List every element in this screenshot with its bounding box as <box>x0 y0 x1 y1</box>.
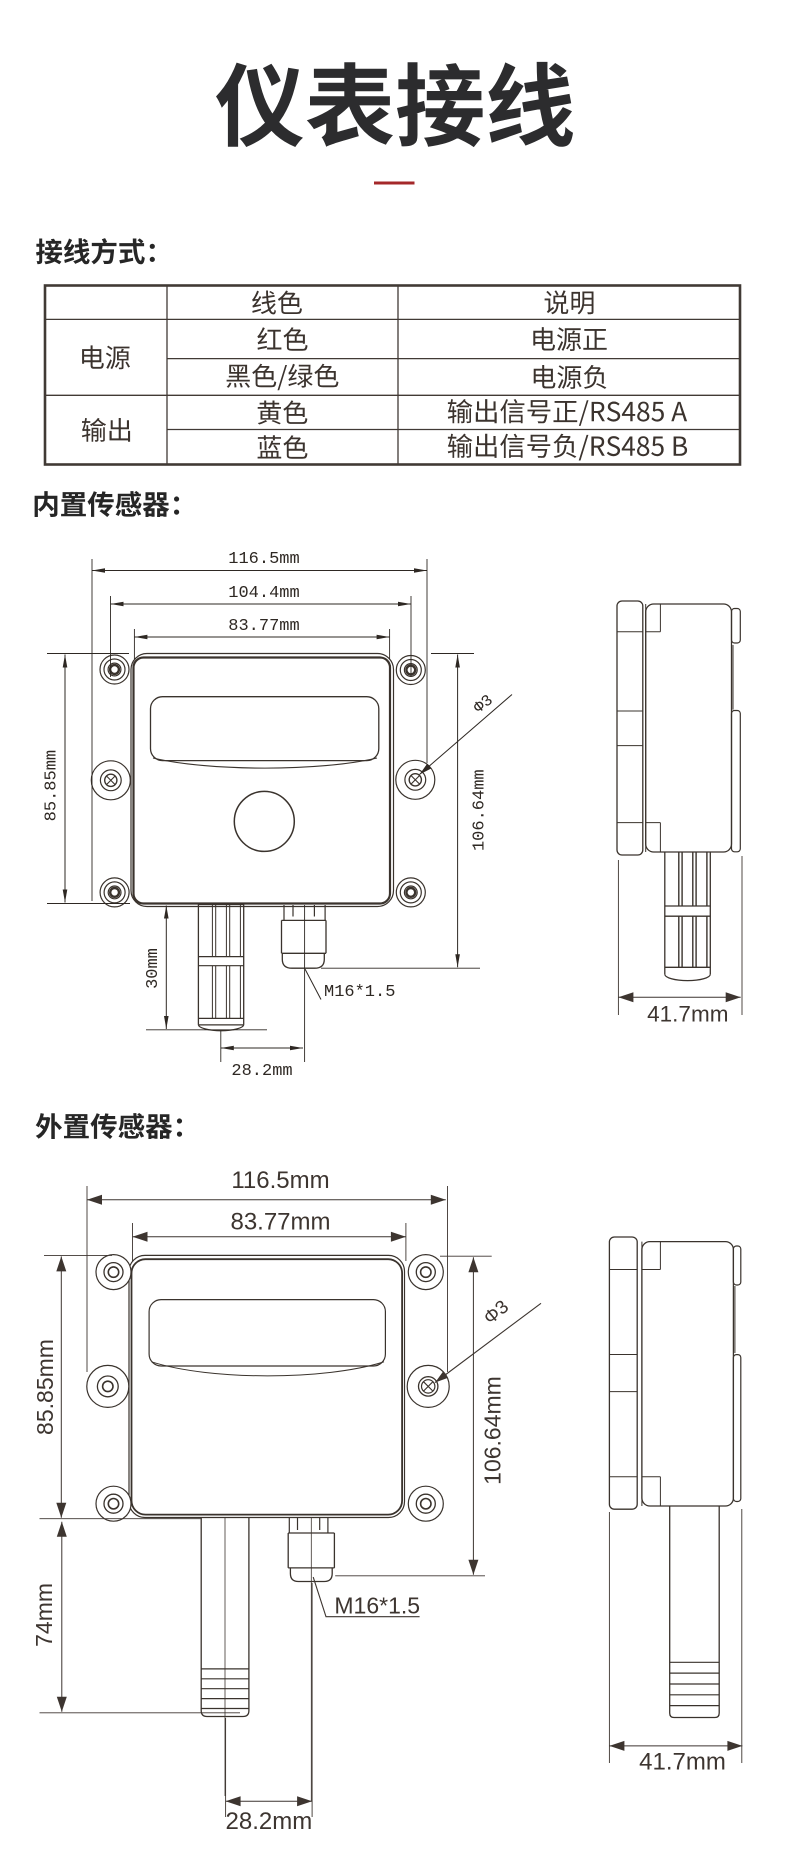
svg-text:74mm: 74mm <box>31 1583 57 1647</box>
svg-text:30mm: 30mm <box>144 948 163 989</box>
svg-text:106.64mm: 106.64mm <box>470 769 489 851</box>
svg-text:M16*1.5: M16*1.5 <box>324 983 395 1002</box>
svg-text:28.2mm: 28.2mm <box>231 1062 292 1081</box>
svg-text:M16*1.5: M16*1.5 <box>334 1593 420 1619</box>
svg-text:85.85mm: 85.85mm <box>32 1339 58 1435</box>
svg-text:41.7mm: 41.7mm <box>647 1002 728 1027</box>
svg-text:83.77mm: 83.77mm <box>228 617 299 636</box>
svg-text:106.64mm: 106.64mm <box>479 1376 505 1485</box>
svg-text:41.7mm: 41.7mm <box>639 1748 726 1775</box>
svg-text:83.77mm: 83.77mm <box>230 1209 330 1236</box>
svg-text:104.4mm: 104.4mm <box>228 584 299 603</box>
svg-text:28.2mm: 28.2mm <box>226 1808 313 1835</box>
svg-text:116.5mm: 116.5mm <box>228 550 299 569</box>
svg-text:85.85mm: 85.85mm <box>43 750 62 821</box>
svg-text:116.5mm: 116.5mm <box>231 1167 329 1194</box>
